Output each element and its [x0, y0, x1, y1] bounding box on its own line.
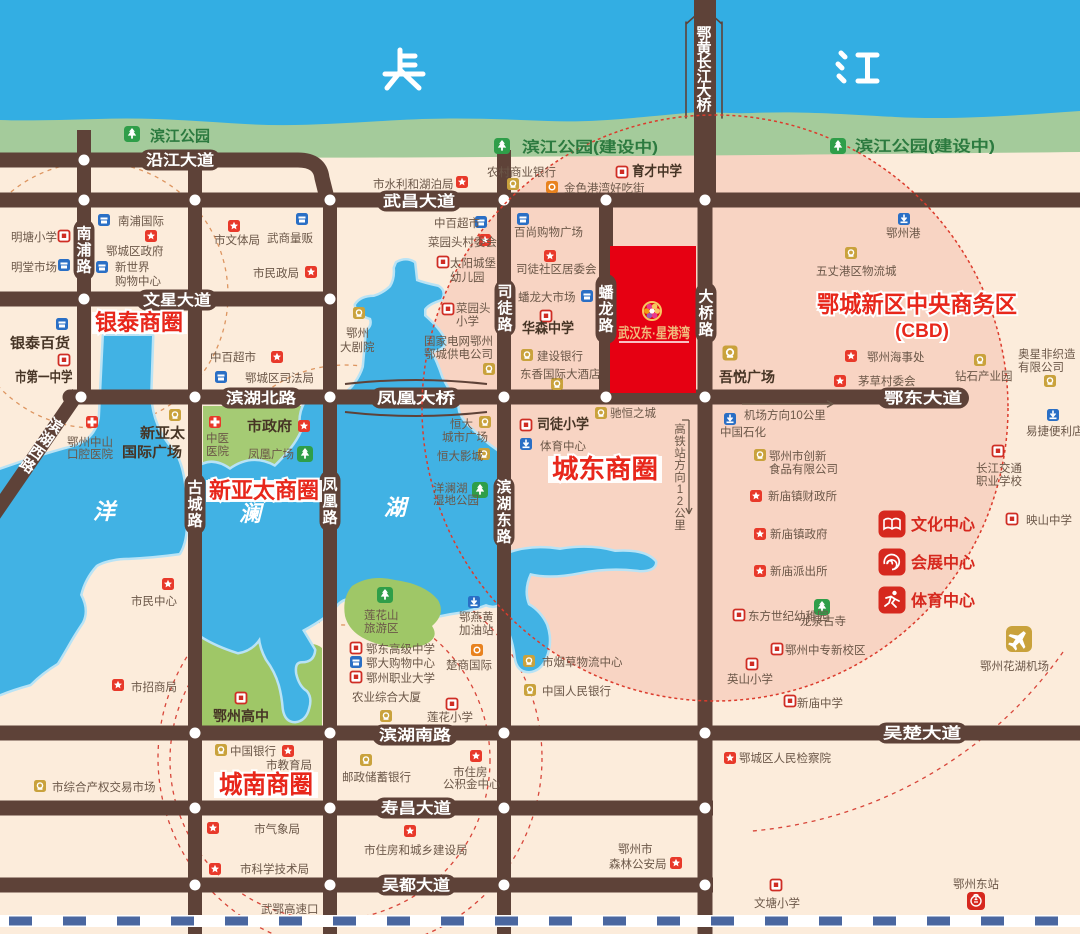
- svg-text:司徒小学: 司徒小学: [537, 416, 589, 432]
- svg-text:机场方向10公里: 机场方向10公里: [744, 408, 826, 422]
- svg-text:映山中学: 映山中学: [1026, 513, 1072, 527]
- svg-text:长江交通: 长江交通: [976, 461, 1022, 475]
- svg-text:1: 1: [677, 484, 683, 496]
- svg-text:(CBD): (CBD): [895, 321, 949, 342]
- svg-text:森林公安局: 森林公安局: [609, 857, 667, 871]
- svg-text:路: 路: [598, 316, 614, 334]
- svg-text:龙: 龙: [597, 300, 613, 318]
- svg-text:建设银行: 建设银行: [537, 349, 583, 363]
- svg-text:金色港湾好吃街: 金色港湾好吃街: [564, 181, 645, 195]
- svg-text:新庙中学: 新庙中学: [797, 696, 843, 710]
- svg-text:鄂城区司法局: 鄂城区司法局: [245, 371, 314, 385]
- svg-text:体育中心: 体育中心: [911, 591, 975, 610]
- svg-text:银泰商圈: 银泰商圈: [95, 310, 183, 335]
- svg-text:会展中心: 会展中心: [911, 553, 975, 572]
- svg-text:市民中心: 市民中心: [131, 594, 177, 608]
- svg-text:新庙派出所: 新庙派出所: [770, 564, 828, 578]
- svg-text:茅草村委会: 茅草村委会: [858, 374, 916, 388]
- svg-text:路: 路: [322, 508, 338, 526]
- svg-text:华森中学: 华森中学: [522, 320, 574, 336]
- svg-text:中国银行: 中国银行: [230, 744, 276, 758]
- svg-text:幼儿园: 幼儿园: [450, 271, 485, 284]
- svg-text:中国石化: 中国石化: [720, 425, 766, 439]
- svg-text:鄂城区人民检察院: 鄂城区人民检察院: [739, 751, 831, 765]
- svg-text:医院: 医院: [206, 444, 229, 458]
- svg-text:南浦国际: 南浦国际: [118, 214, 164, 228]
- svg-text:鄂州市创新: 鄂州市创新: [769, 449, 827, 463]
- svg-text:文塘小学: 文塘小学: [754, 896, 800, 910]
- svg-text:新亚太商圈: 新亚太商圈: [209, 478, 319, 503]
- svg-text:沿江大道: 沿江大道: [146, 151, 214, 169]
- svg-text:武鄂高速口: 武鄂高速口: [261, 902, 319, 916]
- svg-text:菜园头: 菜园头: [456, 302, 491, 315]
- svg-text:司徒社区居委会: 司徒社区居委会: [516, 262, 597, 276]
- svg-text:莲花山: 莲花山: [364, 609, 399, 622]
- svg-text:农村商业银行: 农村商业银行: [487, 165, 556, 179]
- svg-text:易捷便利店: 易捷便利店: [1026, 424, 1080, 438]
- svg-text:鄂东高级中学: 鄂东高级中学: [366, 642, 435, 656]
- svg-text:向: 向: [674, 470, 686, 484]
- svg-text:滨江公园(建设中): 滨江公园(建设中): [855, 137, 995, 155]
- svg-text:市科学技术局: 市科学技术局: [240, 862, 309, 876]
- svg-text:市住房和城乡建设局: 市住房和城乡建设局: [364, 843, 468, 857]
- svg-text:公积金中心: 公积金中心: [443, 777, 501, 791]
- svg-text:龙泉古寺: 龙泉古寺: [800, 614, 846, 628]
- svg-text:大: 大: [698, 287, 713, 305]
- svg-text:东: 东: [496, 511, 511, 529]
- svg-text:徒: 徒: [496, 299, 513, 317]
- svg-text:东香国际大酒店: 东香国际大酒店: [520, 367, 601, 381]
- svg-text:凤凰广场: 凤凰广场: [248, 447, 294, 461]
- svg-text:路: 路: [497, 315, 513, 333]
- svg-text:滨湖北路: 滨湖北路: [226, 389, 297, 407]
- svg-text:路: 路: [76, 257, 92, 275]
- svg-text:凤凰大桥: 凤凰大桥: [377, 389, 456, 407]
- svg-text:农业综合大厦: 农业综合大厦: [352, 690, 421, 704]
- svg-text:路: 路: [698, 320, 714, 338]
- svg-text:旅游区: 旅游区: [364, 621, 399, 635]
- svg-text:城: 城: [187, 495, 202, 513]
- svg-text:鄂州高中: 鄂州高中: [213, 708, 269, 724]
- svg-text:鄂城供电公司: 鄂城供电公司: [424, 347, 493, 361]
- svg-text:鄂城区政府: 鄂城区政府: [106, 244, 164, 258]
- svg-text:2: 2: [677, 496, 683, 508]
- svg-text:鄂州市: 鄂州市: [618, 842, 653, 856]
- svg-text:鄂州港: 鄂州港: [886, 227, 921, 240]
- svg-text:路: 路: [496, 528, 512, 546]
- svg-text:武商量贩: 武商量贩: [267, 231, 313, 245]
- svg-text:市水利和湖泊局: 市水利和湖泊局: [373, 177, 454, 191]
- svg-text:凰: 凰: [322, 493, 337, 510]
- svg-text:驰恒之城: 驰恒之城: [610, 406, 656, 420]
- svg-text:恒大影城: 恒大影城: [437, 449, 483, 463]
- svg-text:鄂燕黄: 鄂燕黄: [459, 610, 494, 624]
- svg-text:明堂市场: 明堂市场: [11, 260, 57, 274]
- svg-text:湖: 湖: [496, 496, 511, 513]
- svg-text:桥: 桥: [696, 96, 712, 114]
- svg-text:吴都大道: 吴都大道: [382, 876, 450, 894]
- svg-text:市教育局: 市教育局: [266, 758, 312, 772]
- svg-text:城市广场: 城市广场: [442, 430, 488, 444]
- svg-text:市招商局: 市招商局: [131, 680, 177, 694]
- svg-text:滨湖南路: 滨湖南路: [379, 726, 452, 744]
- svg-text:公: 公: [674, 507, 686, 520]
- svg-text:武汉东·星港湾: 武汉东·星港湾: [618, 325, 690, 341]
- svg-text:国际广场: 国际广场: [122, 444, 182, 460]
- svg-text:市气象局: 市气象局: [254, 822, 300, 836]
- svg-text:五丈港区物流城: 五丈港区物流城: [816, 264, 897, 278]
- svg-text:奥星非织造: 奥星非织造: [1018, 347, 1076, 361]
- svg-text:蟠: 蟠: [598, 283, 614, 301]
- svg-text:浦: 浦: [76, 241, 91, 259]
- svg-text:恒大: 恒大: [450, 417, 473, 431]
- svg-text:职业学校: 职业学校: [976, 474, 1022, 488]
- svg-text:太阳城堡: 太阳城堡: [450, 256, 496, 270]
- svg-text:银泰百货: 银泰百货: [10, 335, 70, 351]
- svg-text:滨江公园: 滨江公园: [150, 127, 210, 145]
- svg-text:司: 司: [497, 283, 512, 300]
- svg-text:凤: 凤: [322, 476, 337, 493]
- svg-text:新庙镇财政所: 新庙镇财政所: [768, 489, 837, 503]
- svg-text:新庙镇政府: 新庙镇政府: [770, 527, 828, 541]
- svg-text:鄂州东站: 鄂州东站: [953, 877, 999, 891]
- svg-text:口腔医院: 口腔医院: [67, 447, 113, 461]
- svg-text:市第一中学: 市第一中学: [15, 369, 73, 385]
- svg-text:英山小学: 英山小学: [727, 672, 773, 686]
- svg-text:古: 古: [187, 478, 202, 496]
- svg-text:中医: 中医: [206, 432, 229, 445]
- svg-text:鄂大购物中心: 鄂大购物中心: [366, 656, 435, 670]
- svg-text:楚商国际: 楚商国际: [446, 658, 492, 672]
- svg-text:钻石产业园: 钻石产业园: [955, 369, 1013, 383]
- svg-text:鄂东大道: 鄂东大道: [884, 389, 962, 407]
- svg-text:文星大道: 文星大道: [143, 291, 211, 309]
- svg-text:铁: 铁: [674, 435, 686, 448]
- svg-text:鄂州: 鄂州: [346, 327, 369, 340]
- svg-text:站: 站: [674, 446, 686, 460]
- svg-text:鄂州海事处: 鄂州海事处: [867, 350, 925, 364]
- svg-text:市政府: 市政府: [247, 418, 292, 434]
- svg-text:小学: 小学: [456, 314, 479, 328]
- svg-text:里: 里: [674, 519, 686, 532]
- svg-text:鄂城新区中央商务区: 鄂城新区中央商务区: [817, 291, 1017, 317]
- svg-text:百尚购物广场: 百尚购物广场: [514, 225, 583, 239]
- svg-text:中百超市: 中百超市: [434, 216, 480, 230]
- svg-text:路: 路: [187, 511, 203, 529]
- svg-text:国家电网鄂州: 国家电网鄂州: [424, 334, 493, 348]
- svg-text:滨江公园(建设中): 滨江公园(建设中): [522, 138, 658, 156]
- svg-text:市住房: 市住房: [453, 765, 488, 779]
- svg-text:明塘小学: 明塘小学: [11, 230, 57, 244]
- svg-text:市文体局: 市文体局: [214, 233, 260, 247]
- svg-text:湿地公园: 湿地公园: [433, 494, 479, 507]
- svg-text:滨: 滨: [496, 478, 511, 496]
- svg-text:城南商圈: 城南商圈: [219, 770, 313, 799]
- svg-text:市综合产权交易市场: 市综合产权交易市场: [52, 780, 156, 794]
- svg-text:市烟草物流中心: 市烟草物流中心: [542, 655, 623, 669]
- svg-text:吾悦广场: 吾悦广场: [719, 369, 775, 385]
- svg-text:城东商圈: 城东商圈: [552, 454, 658, 484]
- svg-text:南: 南: [76, 224, 91, 242]
- svg-text:鄂州中山: 鄂州中山: [67, 436, 113, 449]
- svg-text:新世界: 新世界: [115, 260, 150, 274]
- svg-text:方: 方: [674, 458, 686, 472]
- svg-text:文化中心: 文化中心: [911, 515, 975, 534]
- svg-text:食品有限公司: 食品有限公司: [769, 462, 838, 476]
- svg-text:有限公司: 有限公司: [1018, 360, 1064, 374]
- svg-text:育才中学: 育才中学: [632, 163, 682, 179]
- svg-text:洋: 洋: [93, 499, 118, 524]
- svg-text:吴楚大道: 吴楚大道: [883, 724, 961, 742]
- svg-text:邮政储蓄银行: 邮政储蓄银行: [342, 770, 411, 784]
- svg-text:中国人民银行: 中国人民银行: [542, 684, 611, 698]
- svg-text:市民政局: 市民政局: [253, 266, 299, 280]
- svg-text:武昌大道: 武昌大道: [383, 192, 455, 210]
- svg-text:购物中心: 购物中心: [115, 274, 161, 288]
- svg-text:体育中心: 体育中心: [540, 439, 586, 453]
- svg-text:莲花小学: 莲花小学: [427, 710, 473, 724]
- svg-text:菜园头村委会: 菜园头村委会: [428, 235, 497, 249]
- svg-text:洋澜湖: 洋澜湖: [433, 481, 468, 495]
- svg-text:加油站: 加油站: [459, 623, 494, 637]
- svg-text:桥: 桥: [698, 304, 714, 322]
- svg-text:鄂州花湖机场: 鄂州花湖机场: [980, 659, 1049, 673]
- svg-text:寿昌大道: 寿昌大道: [381, 799, 451, 817]
- svg-text:大剧院: 大剧院: [340, 340, 375, 354]
- svg-text:鄂州中专新校区: 鄂州中专新校区: [785, 643, 866, 657]
- svg-text:中百超市: 中百超市: [210, 350, 256, 364]
- svg-text:高: 高: [674, 422, 686, 436]
- svg-text:蟠龙大市场: 蟠龙大市场: [518, 290, 576, 304]
- svg-text:新亚太: 新亚太: [140, 425, 186, 441]
- svg-text:鄂州职业大学: 鄂州职业大学: [366, 671, 435, 685]
